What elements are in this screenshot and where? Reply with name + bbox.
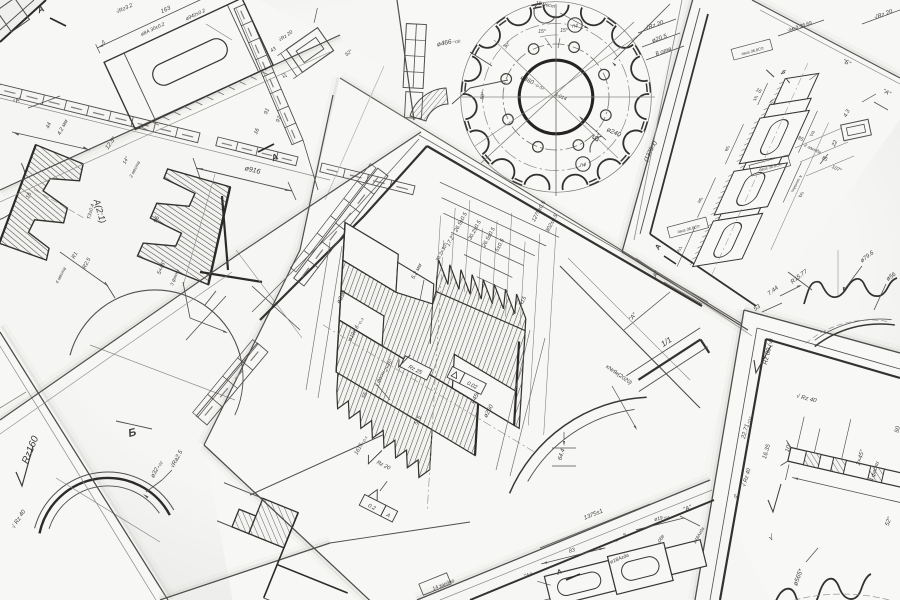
svg-text:n4: n4 [580, 163, 586, 169]
svg-text:15°: 15° [560, 28, 568, 34]
svg-text:15°: 15° [538, 29, 546, 35]
svg-text:n4: n4 [572, 24, 578, 30]
